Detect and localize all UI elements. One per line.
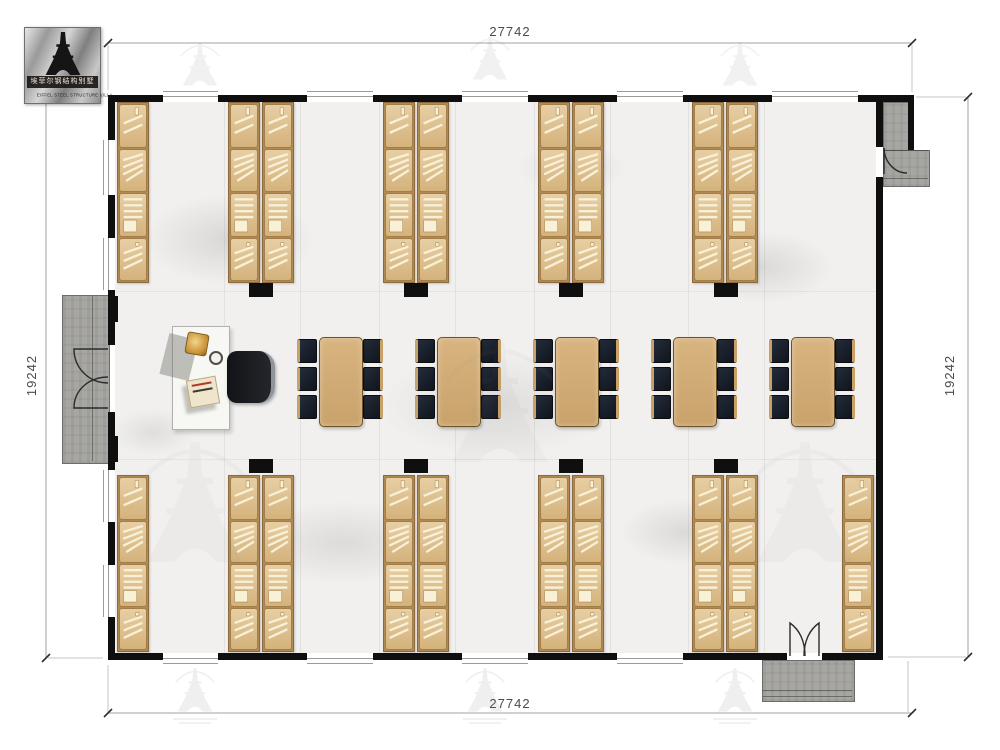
- bed-segment: [264, 564, 292, 607]
- chair: [717, 339, 737, 363]
- wall-segment: [373, 95, 462, 102]
- window: [103, 238, 109, 290]
- dimension-left: 19242: [12, 92, 52, 658]
- bunk-bed-column: [726, 475, 758, 652]
- bed-segment: [230, 193, 258, 237]
- bed-segment: [230, 477, 258, 520]
- bed-segment: [385, 104, 413, 148]
- bed-segment: [540, 564, 568, 607]
- bed-segment: [574, 477, 602, 520]
- watermark-eiffel-logo: [173, 38, 227, 90]
- bunk-bed-column: [726, 102, 758, 283]
- bed-segment: [230, 521, 258, 564]
- chair: [599, 395, 619, 419]
- bed-segment: [230, 149, 258, 193]
- column-stub: [714, 459, 738, 473]
- bunk-bed-column: [383, 475, 415, 652]
- bed-segment: [694, 608, 722, 651]
- wall-segment: [218, 653, 307, 660]
- bunk-bed-column: [417, 475, 449, 652]
- bed-segment: [574, 104, 602, 148]
- chair: [297, 367, 317, 391]
- chair: [769, 395, 789, 419]
- chair: [599, 339, 619, 363]
- chair: [415, 339, 435, 363]
- bed-segment: [574, 149, 602, 193]
- column-stub: [108, 296, 118, 322]
- logo-name-english: EIFFEL STEEL STRUCTURE VILLA: [37, 93, 88, 98]
- bunk-bed-column: [538, 475, 570, 652]
- window: [163, 658, 218, 664]
- bed-segment: [694, 193, 722, 237]
- floor-joint: [115, 291, 876, 292]
- porch-step-line: [763, 690, 852, 691]
- bed-segment: [728, 564, 756, 607]
- chair: [481, 367, 501, 391]
- wall-segment: [108, 95, 115, 140]
- bed-segment: [728, 477, 756, 520]
- watermark-eiffel-logo: [708, 664, 762, 724]
- bed-segment: [264, 104, 292, 148]
- chair: [297, 339, 317, 363]
- bed-segment: [385, 238, 413, 282]
- office-chair: [227, 351, 275, 403]
- bed-segment: [119, 149, 147, 193]
- bed-segment: [540, 608, 568, 651]
- wall-segment: [108, 195, 115, 238]
- bunk-bed-column: [572, 475, 604, 652]
- wall-segment: [876, 95, 883, 147]
- wall-segment: [683, 653, 787, 660]
- column-stub: [108, 436, 118, 462]
- papers: [186, 376, 220, 409]
- bed-segment: [119, 193, 147, 237]
- bed-segment: [385, 564, 413, 607]
- chair: [363, 367, 383, 391]
- bed-segment: [540, 238, 568, 282]
- bunk-bed-column: [692, 475, 724, 652]
- bed-segment: [119, 521, 147, 564]
- wall-segment: [373, 653, 462, 660]
- bed-segment: [694, 564, 722, 607]
- bed-segment: [419, 238, 447, 282]
- bed-segment: [119, 477, 147, 520]
- logo-name-chinese: 埃菲尔钢结构别墅: [27, 76, 98, 88]
- wall-segment: [218, 95, 307, 102]
- bed-segment: [844, 608, 872, 651]
- wall-segment: [108, 95, 163, 102]
- bed-segment: [264, 477, 292, 520]
- bed-segment: [728, 521, 756, 564]
- wall-segment: [528, 95, 617, 102]
- bed-segment: [574, 608, 602, 651]
- wall-segment: [683, 95, 772, 102]
- bed-segment: [385, 521, 413, 564]
- watermark-eiffel-logo: [168, 664, 222, 724]
- window: [103, 470, 109, 522]
- bunk-bed-column: [572, 102, 604, 283]
- chair: [717, 395, 737, 419]
- bed-segment: [574, 564, 602, 607]
- bunk-bed-column: [262, 102, 294, 283]
- column-stub: [404, 459, 428, 473]
- bunk-bed-column: [842, 475, 874, 652]
- chair: [533, 339, 553, 363]
- window: [462, 91, 528, 97]
- desk-lamp: [184, 331, 209, 356]
- chair: [835, 367, 855, 391]
- bed-segment: [728, 193, 756, 237]
- bed-segment: [694, 149, 722, 193]
- bed-segment: [119, 238, 147, 282]
- window: [307, 91, 373, 97]
- chair: [533, 367, 553, 391]
- bed-segment: [540, 477, 568, 520]
- bed-segment: [385, 608, 413, 651]
- wall-segment: [858, 95, 914, 102]
- watermark-text-lines: [458, 718, 512, 724]
- chair: [415, 395, 435, 419]
- bunk-bed-column: [538, 102, 570, 283]
- chair: [363, 339, 383, 363]
- wall-segment: [108, 617, 115, 660]
- bunk-bed-column: [117, 102, 149, 283]
- bed-segment: [728, 149, 756, 193]
- column-stub: [559, 283, 583, 297]
- northeast-entry-steps: [883, 150, 930, 187]
- chair: [717, 367, 737, 391]
- bed-segment: [419, 477, 447, 520]
- window: [103, 140, 109, 195]
- bed-segment: [844, 564, 872, 607]
- bed-segment: [728, 104, 756, 148]
- dimension-bottom: 27742: [108, 696, 912, 711]
- chair: [651, 395, 671, 419]
- office-desk: [172, 326, 230, 430]
- wall-segment: [108, 522, 115, 565]
- bed-segment: [540, 104, 568, 148]
- wall-segment: [108, 653, 163, 660]
- chair: [599, 367, 619, 391]
- window: [617, 658, 683, 664]
- bed-segment: [540, 521, 568, 564]
- bed-segment: [230, 104, 258, 148]
- bed-segment: [119, 564, 147, 607]
- floor-joint: [764, 102, 765, 653]
- porch-step-line: [883, 150, 928, 151]
- dining-table: [437, 337, 481, 427]
- bed-segment: [844, 477, 872, 520]
- watermark-eiffel-logo: [713, 38, 767, 90]
- window: [772, 91, 858, 97]
- bed-segment: [728, 238, 756, 282]
- chair: [481, 395, 501, 419]
- bed-segment: [419, 564, 447, 607]
- northeast-entry-porch: [883, 102, 910, 152]
- porch-step-line: [92, 296, 93, 461]
- window: [103, 565, 109, 617]
- column-stub: [559, 459, 583, 473]
- dining-table: [791, 337, 835, 427]
- dining-table: [673, 337, 717, 427]
- bed-segment: [385, 149, 413, 193]
- wall-segment: [822, 653, 883, 660]
- bed-segment: [540, 193, 568, 237]
- chair: [651, 367, 671, 391]
- chair: [651, 339, 671, 363]
- porch-step-line: [883, 178, 928, 179]
- bed-segment: [419, 608, 447, 651]
- chair: [835, 395, 855, 419]
- chair: [533, 395, 553, 419]
- column-stub: [714, 283, 738, 297]
- bed-segment: [728, 608, 756, 651]
- bed-segment: [694, 104, 722, 148]
- dining-table: [555, 337, 599, 427]
- dining-table: [319, 337, 363, 427]
- watermark-text-lines: [708, 718, 762, 724]
- bed-segment: [540, 149, 568, 193]
- cup: [209, 351, 223, 365]
- dimension-right: 19242: [930, 92, 970, 658]
- watermark-text-lines: [168, 718, 222, 724]
- bed-segment: [419, 104, 447, 148]
- bunk-bed-column: [228, 475, 260, 652]
- bed-segment: [574, 193, 602, 237]
- bed-segment: [419, 149, 447, 193]
- window: [163, 91, 218, 97]
- bed-segment: [694, 238, 722, 282]
- chair: [769, 367, 789, 391]
- column-stub: [404, 283, 428, 297]
- column-stub: [249, 459, 273, 473]
- chair: [297, 395, 317, 419]
- bed-segment: [385, 477, 413, 520]
- bed-segment: [264, 608, 292, 651]
- floorplan-canvas: 埃菲尔钢结构别墅 EIFFEL STEEL STRUCTURE VILLA: [0, 0, 1000, 750]
- company-logo: 埃菲尔钢结构别墅 EIFFEL STEEL STRUCTURE VILLA: [24, 27, 101, 104]
- bed-segment: [844, 521, 872, 564]
- wall-segment: [876, 177, 883, 660]
- bed-segment: [385, 193, 413, 237]
- bed-segment: [264, 238, 292, 282]
- wall-segment: [528, 653, 617, 660]
- bed-segment: [264, 521, 292, 564]
- bed-segment: [694, 521, 722, 564]
- bed-segment: [574, 521, 602, 564]
- bed-segment: [419, 521, 447, 564]
- wall-segment: [908, 95, 914, 150]
- dimension-top: 27742: [108, 24, 912, 39]
- bed-segment: [230, 238, 258, 282]
- watermark-eiffel-logo: [458, 664, 512, 724]
- floor-joint: [115, 459, 876, 460]
- west-entry-porch: [62, 295, 110, 464]
- chair: [363, 395, 383, 419]
- bunk-bed-column: [692, 102, 724, 283]
- bunk-bed-column: [262, 475, 294, 652]
- bed-segment: [230, 564, 258, 607]
- chair: [415, 367, 435, 391]
- watermark-eiffel-logo: [463, 32, 517, 84]
- bed-segment: [694, 477, 722, 520]
- bunk-bed-column: [383, 102, 415, 283]
- column-stub: [249, 283, 273, 297]
- chair: [835, 339, 855, 363]
- eiffel-tower-icon: [37, 31, 89, 77]
- bunk-bed-column: [417, 102, 449, 283]
- bed-segment: [119, 104, 147, 148]
- bunk-bed-column: [117, 475, 149, 652]
- chair: [769, 339, 789, 363]
- window: [462, 658, 528, 664]
- bed-segment: [419, 193, 447, 237]
- window: [307, 658, 373, 664]
- bunk-bed-column: [228, 102, 260, 283]
- window: [617, 91, 683, 97]
- bed-segment: [264, 193, 292, 237]
- chair: [481, 339, 501, 363]
- bed-segment: [230, 608, 258, 651]
- bed-segment: [574, 238, 602, 282]
- bed-segment: [264, 149, 292, 193]
- bed-segment: [119, 608, 147, 651]
